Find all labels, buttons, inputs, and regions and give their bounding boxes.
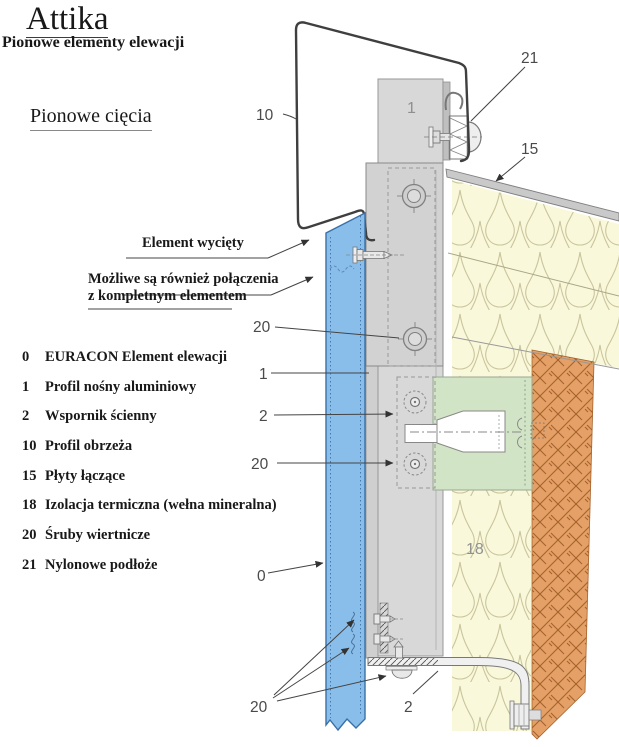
- legend-num: 21: [22, 557, 45, 574]
- legend-item-0: 0 EURACON Element elewacji: [22, 349, 277, 379]
- legend-label: Śruby wiertnicze: [45, 527, 150, 544]
- legend-label: Profil obrzeża: [45, 438, 132, 455]
- attika-detail-drawing: 1 18 10 21 15 20 1 2 20 0 20 2 Attika Pi…: [0, 0, 619, 747]
- legend-item-10: 10 Profil obrzeża: [22, 438, 277, 468]
- legend-label: EURACON Element elewacji: [45, 349, 227, 366]
- annotation-alt-connections: Możliwe są również połączenia z kompletn…: [88, 271, 278, 304]
- legend-label: Nylonowe podłoże: [45, 557, 157, 574]
- annotation-line-1: Możliwe są również połączenia: [88, 271, 278, 288]
- callout-2-bottom: 2: [404, 699, 413, 716]
- annotation-line-2: z kompletnym elementem: [88, 288, 278, 305]
- callout-10: 10: [256, 107, 274, 124]
- page-subtitle: Pionowe elementy elewacji: [2, 34, 184, 52]
- callout-15: 15: [521, 141, 538, 158]
- legend: 0 EURACON Element elewacji 1 Profil nośn…: [22, 349, 277, 587]
- annotation-cutout-element: Element wycięty: [142, 235, 244, 252]
- legend-item-18: 18 Izolacja termiczna (wełna mineralna): [22, 497, 277, 527]
- page-title: Attika: [26, 1, 108, 38]
- legend-num: 1: [22, 379, 45, 396]
- legend-num: 2: [22, 408, 45, 425]
- legend-item-1: 1 Profil nośny aluminiowy: [22, 379, 277, 409]
- inline-label-profile: 1: [407, 100, 416, 117]
- legend-num: 0: [22, 349, 45, 366]
- legend-label: Izolacja termiczna (wełna mineralna): [45, 497, 277, 514]
- legend-label: Profil nośny aluminiowy: [45, 379, 196, 396]
- legend-item-21: 21 Nylonowe podłoże: [22, 557, 277, 587]
- legend-item-20: 20 Śruby wiertnicze: [22, 527, 277, 557]
- legend-item-2: 2 Wspornik ścienny: [22, 408, 277, 438]
- inline-label-insulation: 18: [466, 541, 484, 558]
- section-heading: Pionowe cięcia: [30, 105, 152, 128]
- legend-num: 10: [22, 438, 45, 455]
- legend-num: 20: [22, 527, 45, 544]
- legend-num: 18: [22, 497, 45, 514]
- callout-20-bottom: 20: [250, 699, 268, 716]
- aluminium-profile: [366, 79, 450, 658]
- callout-20-top: 20: [253, 319, 271, 336]
- facade-element-panel: [326, 213, 365, 730]
- callout-21: 21: [521, 50, 538, 67]
- legend-label: Wspornik ścienny: [45, 408, 157, 425]
- legend-num: 15: [22, 468, 45, 485]
- legend-item-15: 15 Płyty łączące: [22, 468, 277, 498]
- legend-label: Płyty łączące: [45, 468, 125, 485]
